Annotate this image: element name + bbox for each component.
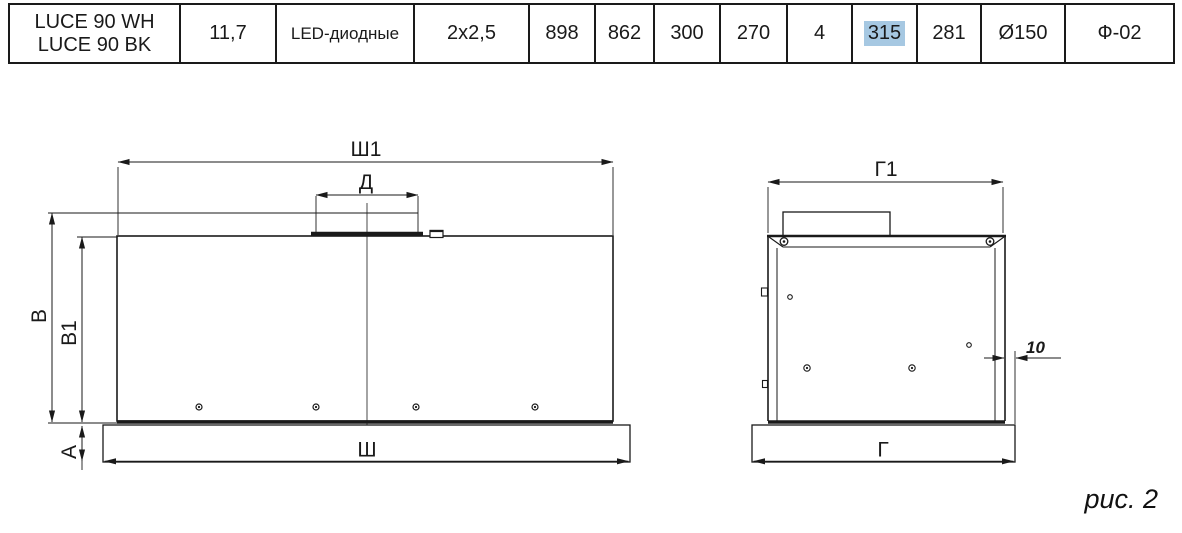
- screw-holes-side: [788, 295, 972, 371]
- mounting-tab: [430, 231, 444, 238]
- wall-clip-upper: [762, 288, 768, 296]
- technical-drawing: Ш1 Д В В1 А Ш: [0, 0, 1182, 533]
- front-view-drawing: Ш1 Д В В1 А Ш: [28, 138, 630, 470]
- dimension-label-sh: Ш: [357, 439, 376, 462]
- hood-body-side: [752, 212, 1015, 462]
- hood-body-front: [103, 203, 630, 462]
- figure-caption: рис. 2: [1083, 484, 1158, 514]
- dimension-label-10: 10: [1026, 338, 1045, 357]
- dimension-label-g: Г: [877, 439, 888, 462]
- duct-outlet: [783, 212, 890, 236]
- dimension-label-v: В: [28, 309, 51, 323]
- dimension-label-a: А: [58, 445, 81, 459]
- dimension-label-d: Д: [359, 171, 373, 194]
- document-page: LUCE 90 WH LUCE 90 BK 11,7 LED-диодные 2…: [0, 0, 1182, 533]
- dimension-label-g1: Г1: [874, 158, 897, 181]
- side-view-drawing: Г1 Г 10: [752, 158, 1061, 462]
- dimension-label-sh1: Ш1: [351, 138, 382, 161]
- dimension-label-v1: В1: [58, 320, 81, 346]
- wall-clip-lower: [763, 381, 768, 388]
- corner-screws: [780, 238, 994, 246]
